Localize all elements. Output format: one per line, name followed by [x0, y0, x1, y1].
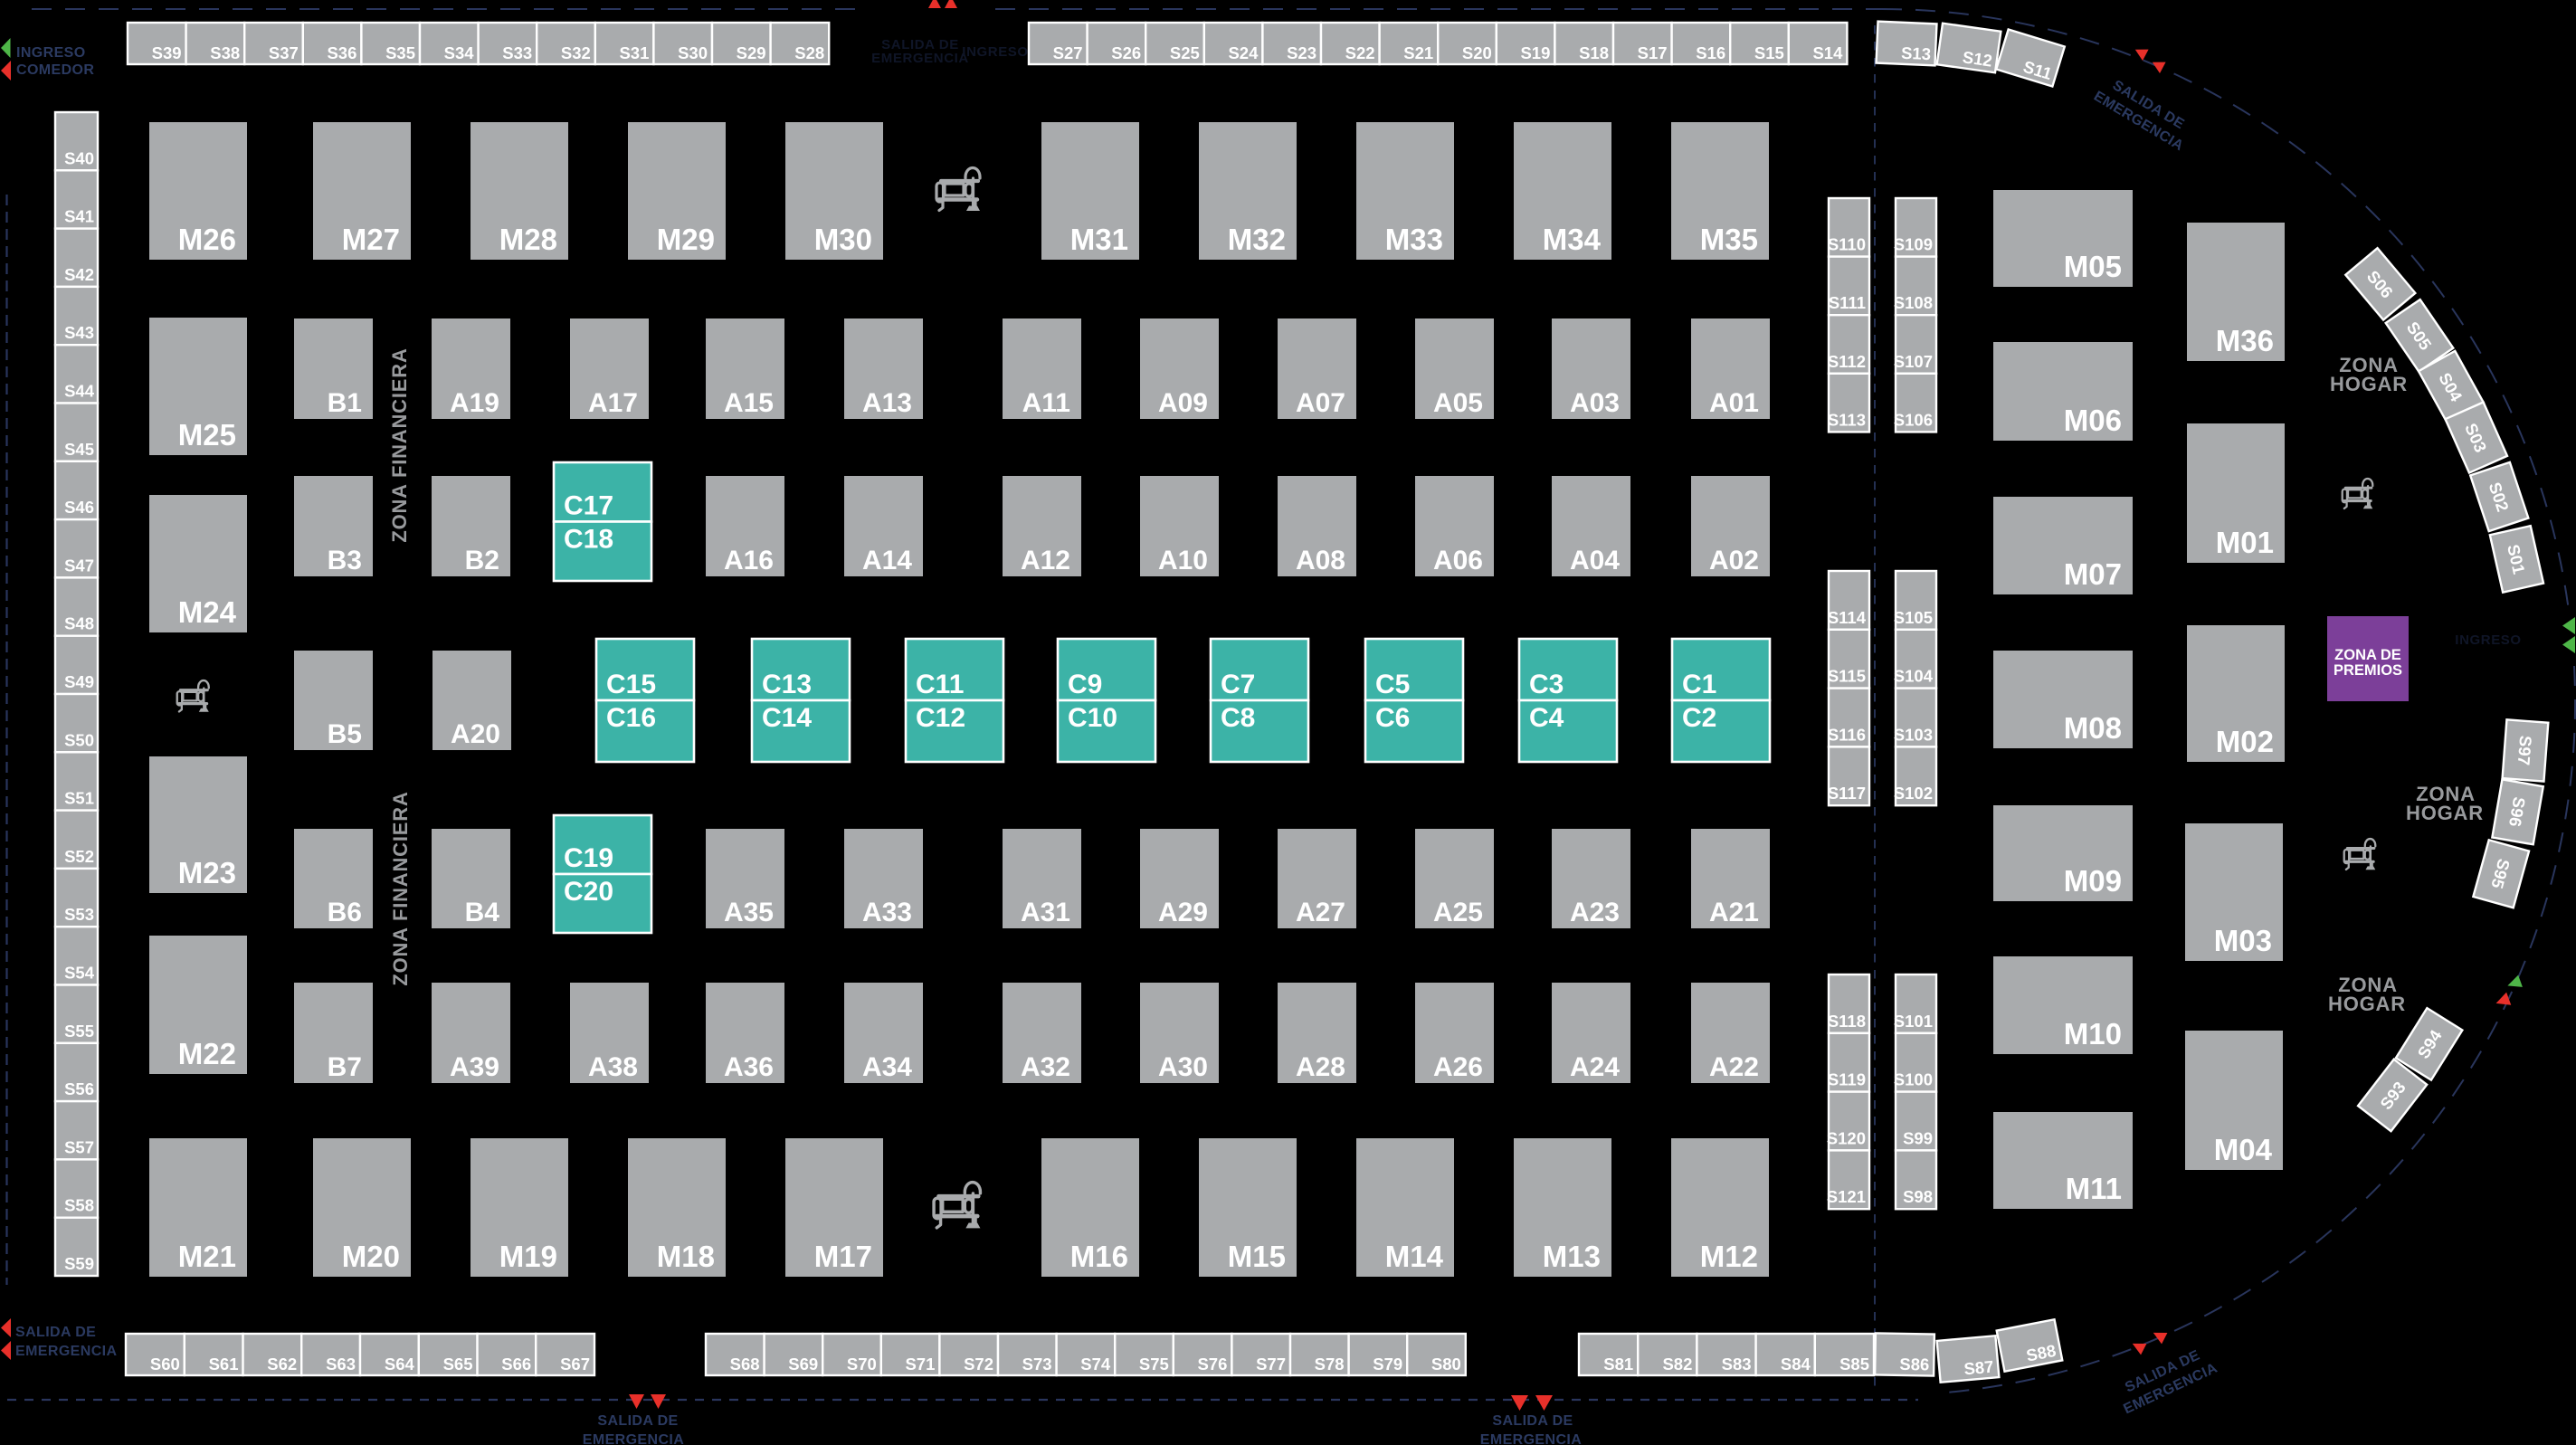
svg-text:S67: S67	[560, 1355, 590, 1374]
svg-text:A20: A20	[451, 719, 500, 749]
svg-text:S47: S47	[64, 556, 94, 575]
svg-text:A07: A07	[1296, 388, 1345, 418]
svg-text:S36: S36	[327, 43, 356, 62]
svg-text:S45: S45	[64, 440, 94, 459]
svg-text:C17: C17	[564, 491, 613, 521]
svg-text:S83: S83	[1722, 1355, 1752, 1374]
svg-text:B2: B2	[465, 546, 499, 575]
svg-text:C8: C8	[1221, 703, 1255, 733]
svg-text:A15: A15	[724, 388, 774, 418]
svg-text:S80: S80	[1431, 1355, 1461, 1374]
svg-text:EMERGENCIA: EMERGENCIA	[1480, 1432, 1582, 1445]
svg-text:A13: A13	[862, 388, 912, 418]
svg-text:C1: C1	[1682, 670, 1716, 699]
svg-text:B7: B7	[328, 1052, 362, 1082]
svg-text:M33: M33	[1385, 223, 1443, 256]
svg-text:A28: A28	[1296, 1052, 1345, 1082]
svg-text:S62: S62	[267, 1355, 297, 1374]
svg-text:C3: C3	[1529, 670, 1564, 699]
svg-text:S86: S86	[1899, 1355, 1929, 1374]
svg-text:S22: S22	[1345, 43, 1375, 62]
svg-text:S113: S113	[1828, 410, 1866, 429]
svg-text:M35: M35	[1700, 223, 1758, 256]
svg-text:S54: S54	[64, 964, 95, 983]
svg-text:A30: A30	[1158, 1052, 1208, 1082]
svg-text:S73: S73	[1022, 1355, 1052, 1374]
svg-text:A34: A34	[862, 1052, 912, 1082]
svg-text:M15: M15	[1228, 1240, 1286, 1273]
svg-text:A14: A14	[862, 546, 912, 575]
svg-text:C14: C14	[762, 703, 812, 733]
svg-text:S81: S81	[1603, 1355, 1633, 1374]
svg-text:A05: A05	[1433, 388, 1483, 418]
svg-text:A01: A01	[1709, 388, 1759, 418]
svg-text:S76: S76	[1197, 1355, 1227, 1374]
svg-text:S121: S121	[1827, 1187, 1866, 1206]
svg-text:S53: S53	[64, 905, 94, 924]
svg-text:S14: S14	[1812, 43, 1843, 62]
svg-text:HOGAR: HOGAR	[2330, 373, 2408, 395]
svg-text:S118: S118	[1828, 1012, 1866, 1031]
svg-text:S13: S13	[1901, 43, 1932, 63]
svg-text:C11: C11	[916, 670, 964, 699]
svg-text:S119: S119	[1828, 1070, 1866, 1089]
svg-text:M16: M16	[1070, 1240, 1128, 1273]
svg-text:S30: S30	[678, 43, 708, 62]
svg-text:S111: S111	[1829, 293, 1866, 312]
svg-text:S117: S117	[1828, 784, 1866, 803]
svg-text:A12: A12	[1021, 546, 1070, 575]
svg-text:M29: M29	[657, 223, 715, 256]
svg-text:M07: M07	[2064, 557, 2122, 591]
svg-text:A08: A08	[1296, 546, 1345, 575]
svg-text:S35: S35	[385, 43, 415, 62]
svg-text:B1: B1	[328, 388, 362, 418]
svg-text:S20: S20	[1462, 43, 1492, 62]
svg-text:A32: A32	[1021, 1052, 1070, 1082]
svg-text:S39: S39	[152, 43, 182, 62]
svg-text:C10: C10	[1068, 703, 1117, 733]
svg-text:S40: S40	[64, 148, 94, 167]
svg-text:S64: S64	[385, 1355, 415, 1374]
svg-text:M02: M02	[2216, 725, 2274, 758]
svg-text:A06: A06	[1433, 546, 1483, 575]
svg-text:S33: S33	[502, 43, 532, 62]
svg-text:S31: S31	[619, 43, 649, 62]
svg-text:A23: A23	[1570, 898, 1620, 927]
svg-text:A39: A39	[450, 1052, 499, 1082]
svg-text:A04: A04	[1570, 546, 1620, 575]
svg-text:M08: M08	[2064, 711, 2122, 745]
svg-text:S68: S68	[730, 1355, 760, 1374]
svg-text:M30: M30	[814, 223, 872, 256]
svg-text:S15: S15	[1754, 43, 1784, 62]
svg-text:M26: M26	[178, 223, 236, 256]
svg-text:S32: S32	[561, 43, 591, 62]
svg-text:EMERGENCIA: EMERGENCIA	[583, 1432, 684, 1445]
svg-text:ZONA FINANCIERA: ZONA FINANCIERA	[388, 347, 411, 542]
svg-text:S42: S42	[64, 265, 94, 284]
svg-text:B6: B6	[328, 898, 362, 927]
svg-text:S23: S23	[1287, 43, 1317, 62]
svg-text:S49: S49	[64, 672, 94, 691]
svg-text:M13: M13	[1543, 1240, 1601, 1273]
svg-text:A26: A26	[1433, 1052, 1483, 1082]
svg-text:C9: C9	[1068, 670, 1102, 699]
svg-text:S38: S38	[210, 43, 240, 62]
svg-text:S66: S66	[501, 1355, 531, 1374]
svg-text:S84: S84	[1781, 1355, 1811, 1374]
svg-text:C2: C2	[1682, 703, 1716, 733]
svg-text:S21: S21	[1403, 43, 1433, 62]
svg-text:A09: A09	[1158, 388, 1208, 418]
svg-text:M17: M17	[814, 1240, 872, 1273]
svg-text:S102: S102	[1894, 784, 1933, 803]
svg-text:M23: M23	[178, 856, 236, 889]
svg-text:A35: A35	[724, 898, 774, 927]
svg-text:S114: S114	[1828, 608, 1867, 627]
svg-text:S55: S55	[64, 1022, 94, 1041]
svg-text:S77: S77	[1256, 1355, 1286, 1374]
svg-text:EMERGENCIA: EMERGENCIA	[871, 51, 969, 66]
svg-text:M12: M12	[1700, 1240, 1758, 1273]
svg-text:M11: M11	[2066, 1172, 2122, 1205]
svg-text:A10: A10	[1158, 546, 1208, 575]
svg-text:A24: A24	[1570, 1052, 1620, 1082]
svg-text:S110: S110	[1828, 235, 1866, 254]
svg-text:M25: M25	[178, 418, 236, 452]
svg-text:B5: B5	[328, 719, 362, 749]
svg-text:S65: S65	[443, 1355, 473, 1374]
svg-text:M22: M22	[178, 1037, 236, 1070]
svg-text:SALIDA DE: SALIDA DE	[597, 1413, 678, 1429]
svg-text:M18: M18	[657, 1240, 715, 1273]
svg-text:C6: C6	[1375, 703, 1410, 733]
svg-text:M31: M31	[1070, 223, 1128, 256]
svg-text:S52: S52	[64, 847, 94, 866]
svg-text:S70: S70	[847, 1355, 877, 1374]
svg-text:S24: S24	[1228, 43, 1259, 62]
svg-text:C19: C19	[564, 843, 613, 873]
svg-text:S48: S48	[64, 614, 94, 633]
svg-text:S50: S50	[64, 730, 94, 749]
svg-text:C13: C13	[762, 670, 812, 699]
svg-text:M04: M04	[2214, 1133, 2273, 1166]
svg-text:A16: A16	[724, 546, 774, 575]
svg-text:S105: S105	[1894, 608, 1933, 627]
svg-text:A25: A25	[1433, 898, 1483, 927]
svg-text:M24: M24	[178, 595, 237, 629]
svg-text:A17: A17	[588, 388, 638, 418]
svg-text:S72: S72	[964, 1355, 993, 1374]
svg-text:INGRESO: INGRESO	[16, 45, 86, 61]
svg-text:INGRESO: INGRESO	[962, 44, 1028, 60]
svg-text:S116: S116	[1828, 725, 1866, 744]
svg-text:M06: M06	[2064, 404, 2122, 437]
svg-text:SALIDA DE: SALIDA DE	[15, 1325, 96, 1340]
svg-text:S98: S98	[1903, 1187, 1933, 1206]
svg-text:S79: S79	[1373, 1355, 1402, 1374]
svg-text:M21: M21	[178, 1240, 236, 1273]
svg-text:S18: S18	[1579, 43, 1609, 62]
svg-text:B3: B3	[328, 546, 362, 575]
svg-text:A02: A02	[1709, 546, 1759, 575]
svg-text:C12: C12	[916, 703, 965, 733]
svg-text:M32: M32	[1228, 223, 1286, 256]
svg-text:M10: M10	[2064, 1017, 2122, 1050]
svg-text:M36: M36	[2216, 324, 2274, 357]
svg-text:S97: S97	[2514, 735, 2535, 765]
svg-text:ZONA DE: ZONA DE	[2334, 647, 2401, 663]
svg-text:S99: S99	[1903, 1128, 1933, 1147]
svg-text:C5: C5	[1375, 670, 1410, 699]
svg-text:S25: S25	[1170, 43, 1200, 62]
svg-text:S109: S109	[1894, 235, 1933, 254]
svg-text:C16: C16	[606, 703, 656, 733]
svg-text:S106: S106	[1894, 410, 1933, 429]
svg-text:M05: M05	[2064, 250, 2122, 283]
svg-text:A27: A27	[1296, 898, 1345, 927]
svg-text:S16: S16	[1696, 43, 1725, 62]
svg-text:S37: S37	[269, 43, 299, 62]
svg-text:S101: S101	[1894, 1012, 1933, 1031]
svg-text:A33: A33	[862, 898, 912, 927]
svg-text:COMEDOR: COMEDOR	[16, 62, 94, 78]
svg-text:S46: S46	[64, 498, 94, 517]
svg-text:A11: A11	[1022, 388, 1070, 418]
svg-text:C20: C20	[564, 877, 613, 907]
svg-text:B4: B4	[465, 898, 500, 927]
svg-text:S56: S56	[64, 1079, 94, 1098]
svg-text:C7: C7	[1221, 670, 1255, 699]
svg-text:A36: A36	[724, 1052, 774, 1082]
svg-text:C18: C18	[564, 525, 613, 555]
svg-text:S60: S60	[150, 1355, 180, 1374]
svg-text:PREMIOS: PREMIOS	[2334, 662, 2402, 679]
svg-text:S41: S41	[64, 207, 94, 226]
svg-text:S28: S28	[794, 43, 824, 62]
svg-text:SALIDA DE: SALIDA DE	[1492, 1413, 1573, 1429]
svg-text:S100: S100	[1894, 1070, 1933, 1089]
svg-text:S63: S63	[326, 1355, 356, 1374]
svg-text:ZONA FINANCIERA: ZONA FINANCIERA	[389, 791, 412, 985]
svg-text:A31: A31	[1021, 898, 1070, 927]
svg-text:S43: S43	[64, 323, 94, 342]
svg-text:S78: S78	[1315, 1355, 1345, 1374]
svg-text:M01: M01	[2216, 526, 2274, 559]
svg-text:S34: S34	[444, 43, 475, 62]
svg-text:S26: S26	[1111, 43, 1141, 62]
svg-text:A19: A19	[450, 388, 499, 418]
svg-text:C15: C15	[606, 670, 656, 699]
svg-text:S87: S87	[1963, 1357, 1995, 1379]
svg-text:S58: S58	[64, 1196, 94, 1215]
svg-text:S104: S104	[1894, 667, 1934, 686]
svg-text:S107: S107	[1894, 352, 1933, 371]
svg-text:S103: S103	[1894, 725, 1933, 744]
svg-text:M03: M03	[2214, 924, 2272, 957]
svg-text:INGRESO: INGRESO	[2455, 632, 2521, 648]
svg-text:M34: M34	[1543, 223, 1602, 256]
svg-text:S51: S51	[64, 789, 94, 808]
svg-text:S108: S108	[1894, 293, 1933, 312]
svg-text:S69: S69	[788, 1355, 818, 1374]
svg-text:S57: S57	[64, 1137, 94, 1156]
svg-text:S27: S27	[1053, 43, 1083, 62]
svg-text:S44: S44	[64, 382, 95, 401]
svg-text:S85: S85	[1839, 1355, 1869, 1374]
svg-text:M20: M20	[342, 1240, 400, 1273]
svg-text:M28: M28	[499, 223, 557, 256]
svg-text:A03: A03	[1570, 388, 1620, 418]
svg-text:S59: S59	[64, 1254, 94, 1273]
svg-text:S71: S71	[905, 1355, 935, 1374]
svg-text:A21: A21	[1709, 898, 1759, 927]
svg-text:S17: S17	[1638, 43, 1668, 62]
svg-text:S19: S19	[1520, 43, 1550, 62]
svg-text:M09: M09	[2064, 864, 2122, 898]
svg-text:A22: A22	[1709, 1052, 1759, 1082]
svg-text:S115: S115	[1828, 667, 1866, 686]
svg-text:S61: S61	[209, 1355, 239, 1374]
svg-text:S29: S29	[737, 43, 766, 62]
svg-text:S74: S74	[1080, 1355, 1111, 1374]
svg-text:S120: S120	[1827, 1128, 1866, 1147]
svg-text:A29: A29	[1158, 898, 1208, 927]
svg-text:EMERGENCIA: EMERGENCIA	[15, 1344, 117, 1359]
svg-text:S82: S82	[1662, 1355, 1692, 1374]
svg-text:C4: C4	[1529, 703, 1564, 733]
svg-text:HOGAR: HOGAR	[2406, 802, 2484, 824]
svg-text:S75: S75	[1139, 1355, 1169, 1374]
svg-text:HOGAR: HOGAR	[2328, 993, 2406, 1015]
svg-text:S112: S112	[1828, 352, 1866, 371]
svg-text:M14: M14	[1385, 1240, 1444, 1273]
svg-text:M27: M27	[342, 223, 400, 256]
svg-text:M19: M19	[499, 1240, 557, 1273]
svg-text:A38: A38	[588, 1052, 638, 1082]
